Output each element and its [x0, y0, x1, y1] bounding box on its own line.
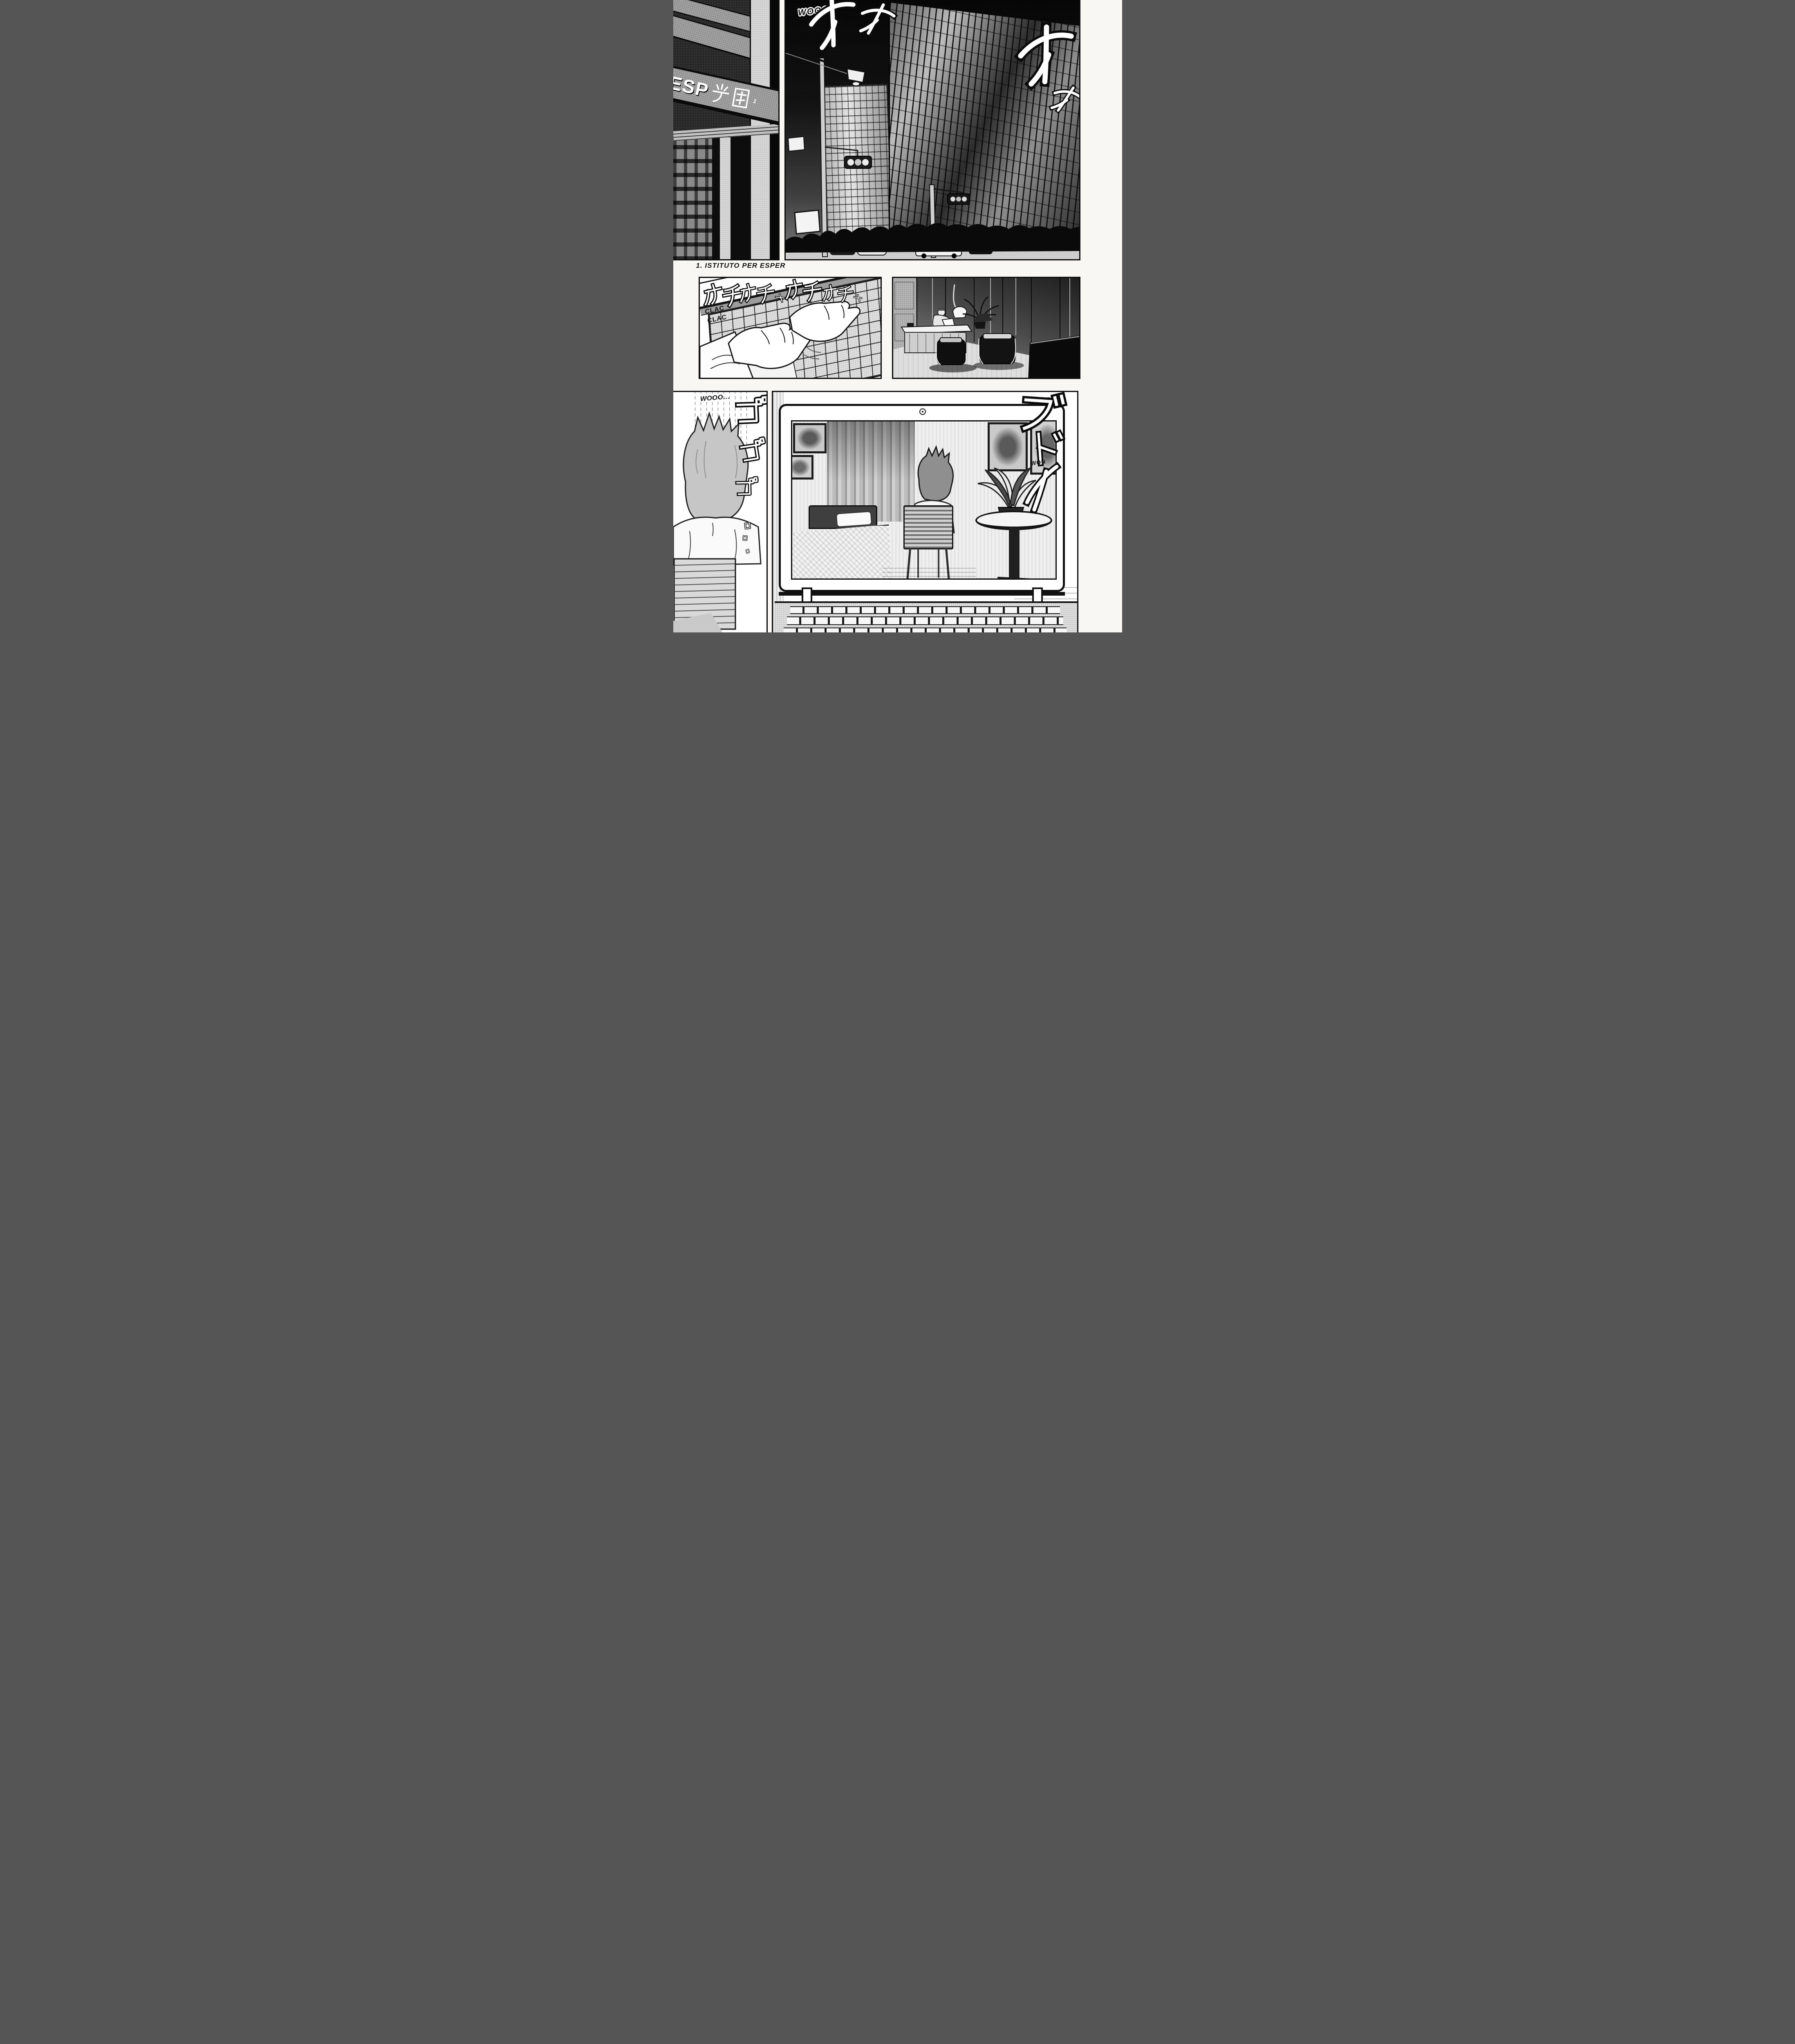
office-art: [893, 278, 1080, 379]
school-sign-kanji-icon: [709, 81, 731, 106]
screen-floor: [882, 565, 976, 580]
key-row: [784, 628, 1067, 632]
school-sign-latin: ESP: [673, 72, 711, 102]
panel-building-sign: ESP 1: [673, 0, 780, 260]
panel-sitting-back: WOOO...: [673, 391, 768, 632]
sfx-kana-icon: [737, 277, 789, 312]
rumble-trail-mark: [745, 549, 750, 554]
panel-caption: 1. ISTITUTO PER ESPER: [696, 262, 786, 270]
school-sign-kanji-icon: [729, 85, 751, 110]
webcam-icon: [919, 408, 926, 415]
facade-windows: [673, 135, 712, 260]
panel-laptop-room: WON: [772, 391, 1078, 632]
key-row: [790, 606, 1060, 614]
sfx-kana-icon: [784, 277, 825, 306]
panel-typing: CLAC CLAC: [699, 277, 882, 379]
laptop-hinge-bar: [779, 592, 1065, 596]
bed-duvet: [791, 524, 892, 580]
side-table-pedestal: [1009, 527, 1020, 580]
rumble-trail-mark: [741, 535, 748, 542]
sfx-kana-icon: [821, 280, 865, 309]
sitting-man-art: [673, 392, 768, 632]
panel-office: [892, 277, 1080, 379]
key-row: [787, 616, 1063, 625]
sfx-rumble-icon: [737, 438, 765, 464]
sfx-sparkle-icon: [857, 0, 896, 39]
chair-back: [903, 505, 953, 549]
manga-page: ESP 1: [673, 0, 1122, 632]
sfx-rumble-icon: [733, 475, 757, 500]
sfx-rumble-icon: [732, 394, 767, 428]
entrance-pillar: [719, 137, 731, 260]
rumble-trail-mark: [744, 522, 751, 529]
bed-pillow: [836, 511, 872, 527]
wall-picture: [793, 423, 827, 453]
school-sign-note-marker: 1: [752, 98, 757, 105]
wall-picture: [791, 455, 813, 480]
panel-skyscraper: WOOO: [784, 0, 1080, 260]
laptop-base-keyboard: [775, 601, 1078, 632]
